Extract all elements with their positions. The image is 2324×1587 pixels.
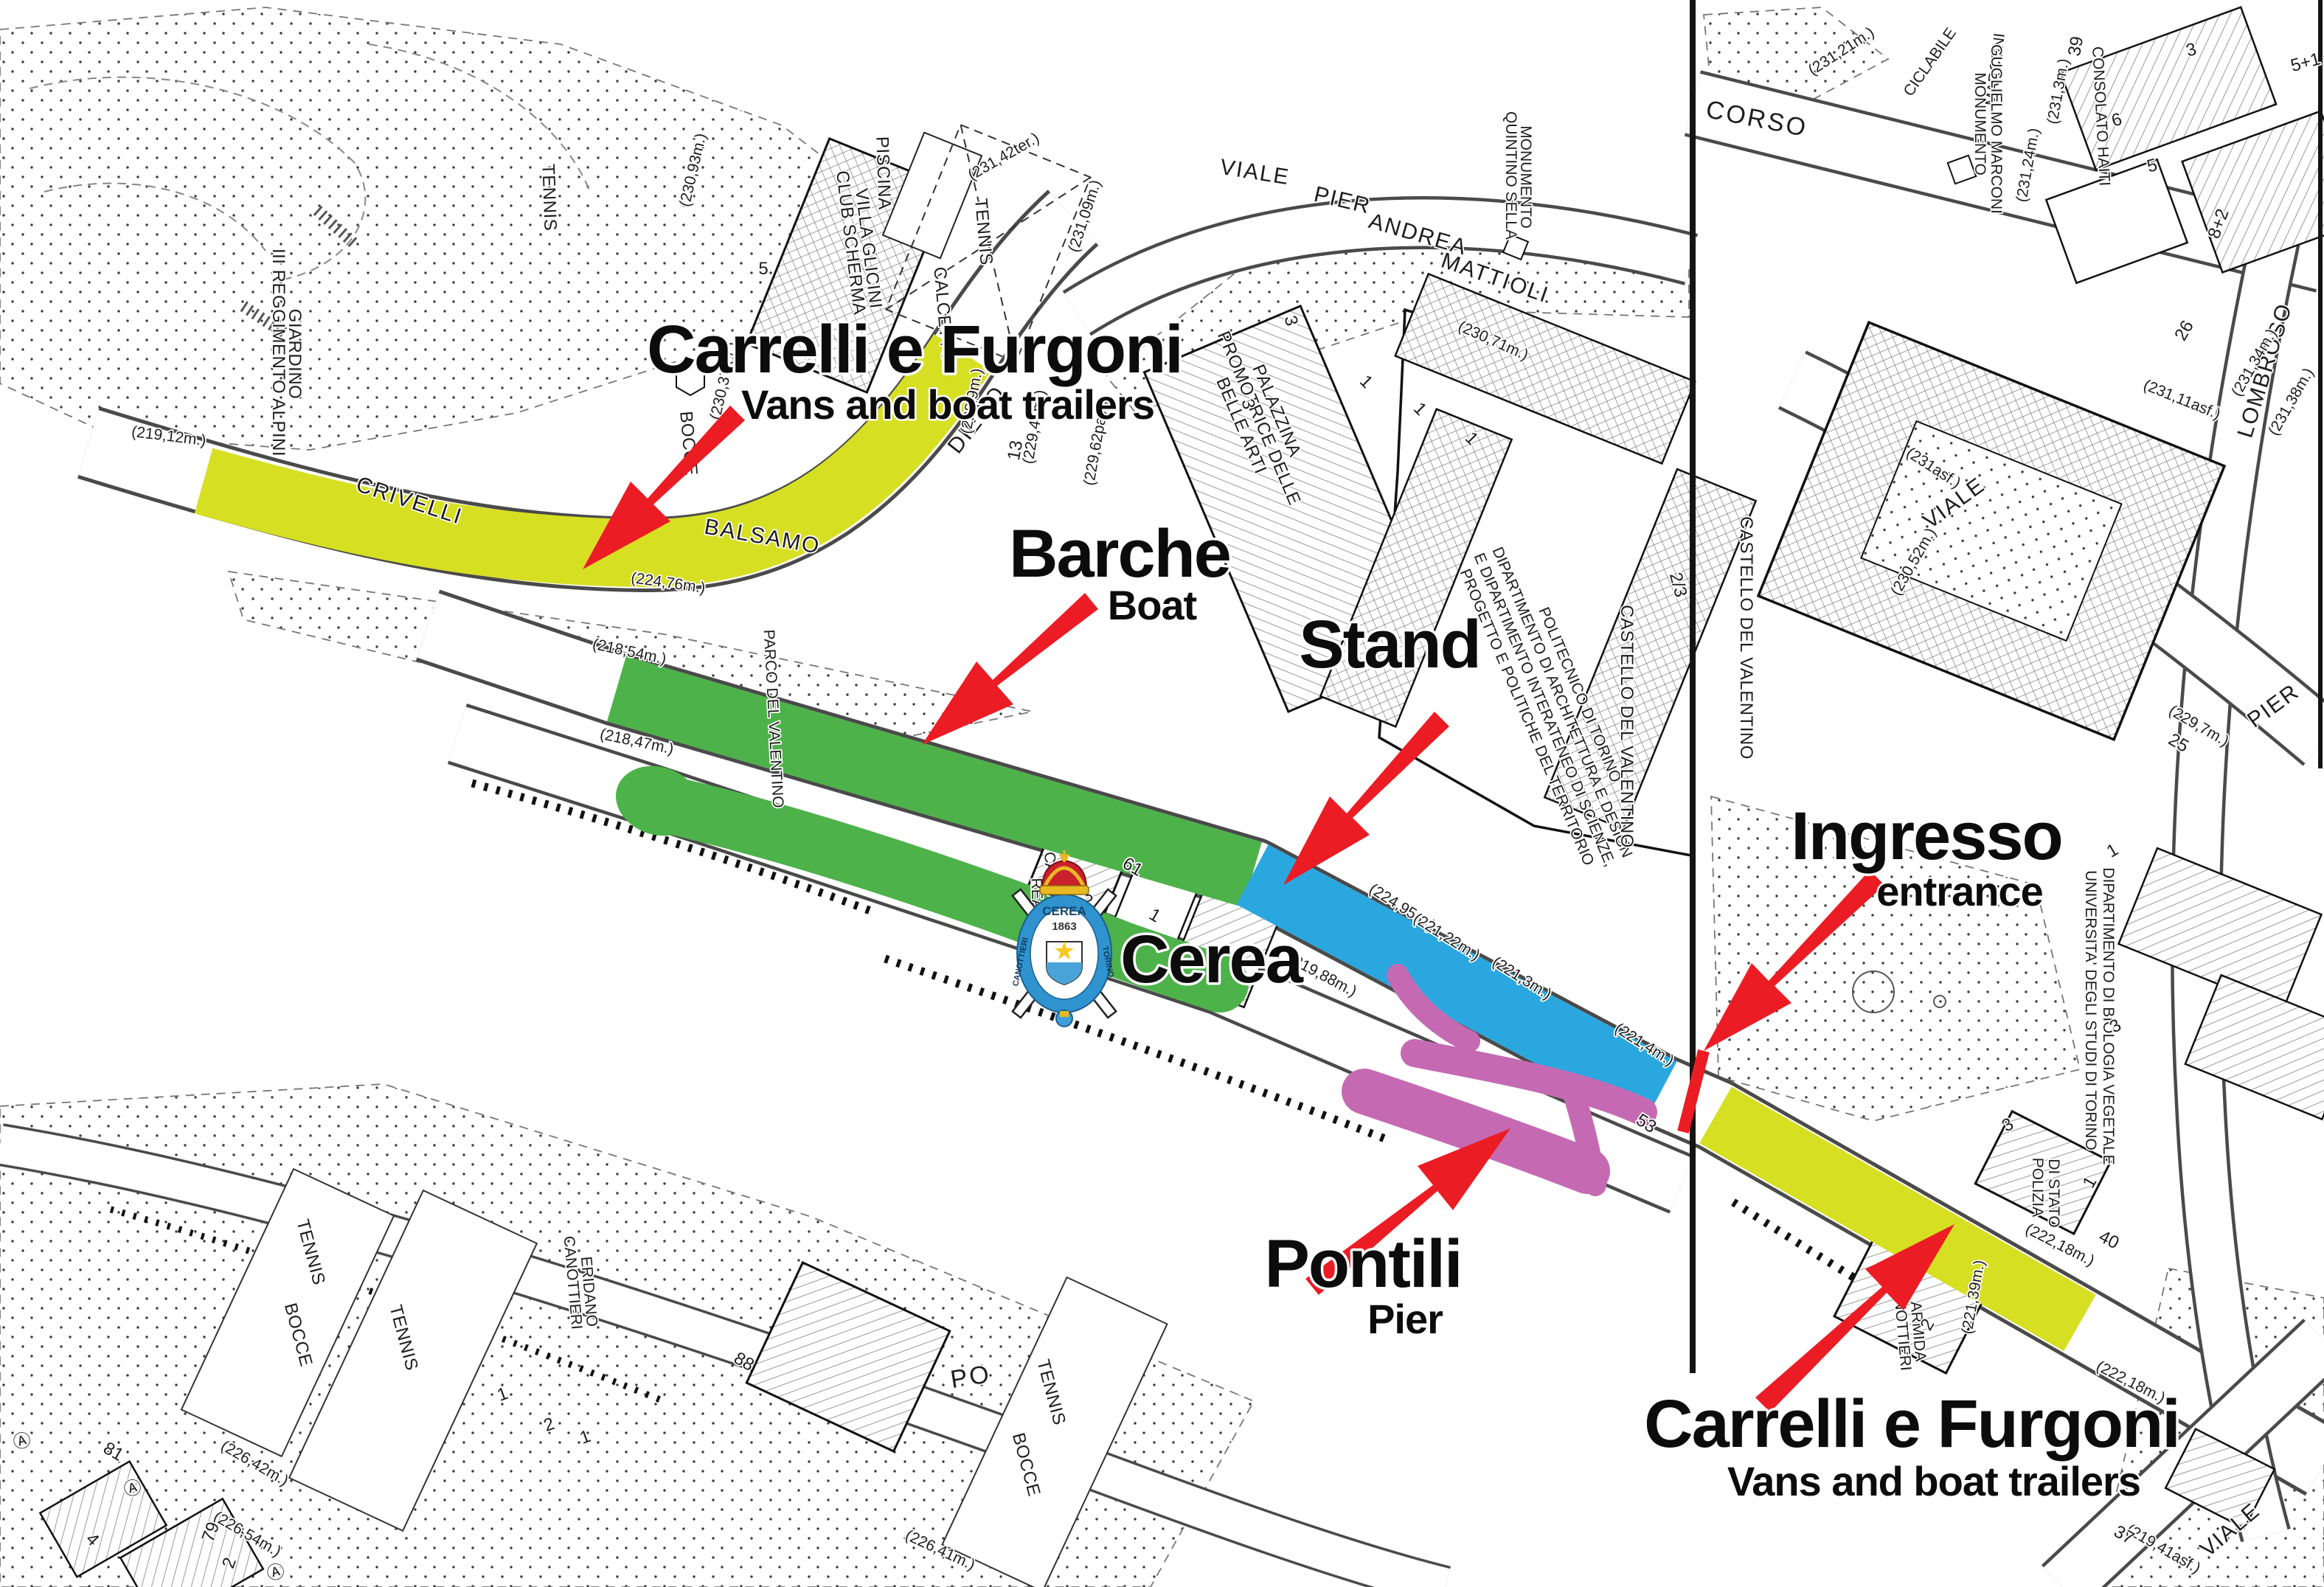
- parcel-number: 39: [2064, 35, 2087, 58]
- street-label: CICLABILE: [1900, 25, 1959, 100]
- place-label: QUINTINO SELLA: [1502, 111, 1519, 240]
- place-label: PISCINA: [872, 136, 894, 210]
- label-cerea-title: Cerea: [1120, 922, 1304, 997]
- place-label: CASTELLO DEL VALENTINO: [1736, 516, 1756, 760]
- place-label: UNIVERSITA' DEGLI STUDI DI TORINO: [2082, 870, 2099, 1150]
- place-label: CASTELLO DEL VALENTINO: [1617, 605, 1637, 848]
- place-label: POLIZIA: [2029, 1158, 2046, 1218]
- map-canvas: CRIVELLI BALSAMO DIEGO VIALE PIER ANDREA…: [0, 0, 2324, 1587]
- label-vans-trailers-se-title: Carrelli e Furgoni: [1644, 1386, 2179, 1462]
- place-label: MONUMENTO: [1971, 72, 1988, 176]
- place-label: DI STATO: [2045, 1159, 2062, 1227]
- parcel-number: 40: [2095, 1226, 2122, 1253]
- parcel-number: 5+1: [2289, 49, 2323, 76]
- arrow-stand: [1283, 712, 1449, 885]
- map-screenshot: CRIVELLI BALSAMO DIEGO VIALE PIER ANDREA…: [0, 0, 2324, 1587]
- place-label: TENNIS: [538, 164, 560, 232]
- crest-year: 1863: [1052, 920, 1076, 933]
- parcel-number: 5: [758, 259, 768, 279]
- crest-club-name: CEREA: [1042, 904, 1086, 918]
- parcel-number: 1: [2103, 839, 2122, 861]
- label-stand-title: Stand: [1299, 607, 1480, 682]
- place-label: III REGGIMENTO ALPINI: [268, 249, 288, 456]
- street-label: VIALE: [1218, 155, 1291, 190]
- label-vans-trailers-nw-title: Carrelli e Furgoni: [647, 312, 1182, 387]
- label-vans-trailers-nw-subtitle: Vans and boat trailers: [741, 381, 1154, 428]
- label-vans-trailers-se-subtitle: Vans and boat trailers: [1727, 1458, 2140, 1504]
- label-pier-subtitle: Pier: [1367, 1296, 1443, 1342]
- crest-star-icon: ★: [1053, 938, 1075, 965]
- place-label: GUGLIELMO MARCONI: [1988, 44, 2005, 214]
- parcel-number: 13: [1004, 439, 1027, 462]
- label-entrance-title: Ingresso: [1791, 799, 2061, 874]
- label-pier-title: Pontili: [1264, 1226, 1461, 1302]
- elevation-label: (231,11asf.): [2141, 377, 2223, 423]
- label-entrance-subtitle: entrance: [1876, 868, 2042, 914]
- parcel-number: 26: [2171, 317, 2198, 344]
- crest-buckle-pin: [1060, 1011, 1069, 1017]
- label-boats-subtitle: Boat: [1108, 582, 1197, 628]
- arrow-boats: [922, 593, 1098, 745]
- place-label: TENNIS: [971, 198, 996, 266]
- parcel-number: 1: [1356, 371, 1377, 392]
- label-boats-title: Barche: [1009, 516, 1230, 591]
